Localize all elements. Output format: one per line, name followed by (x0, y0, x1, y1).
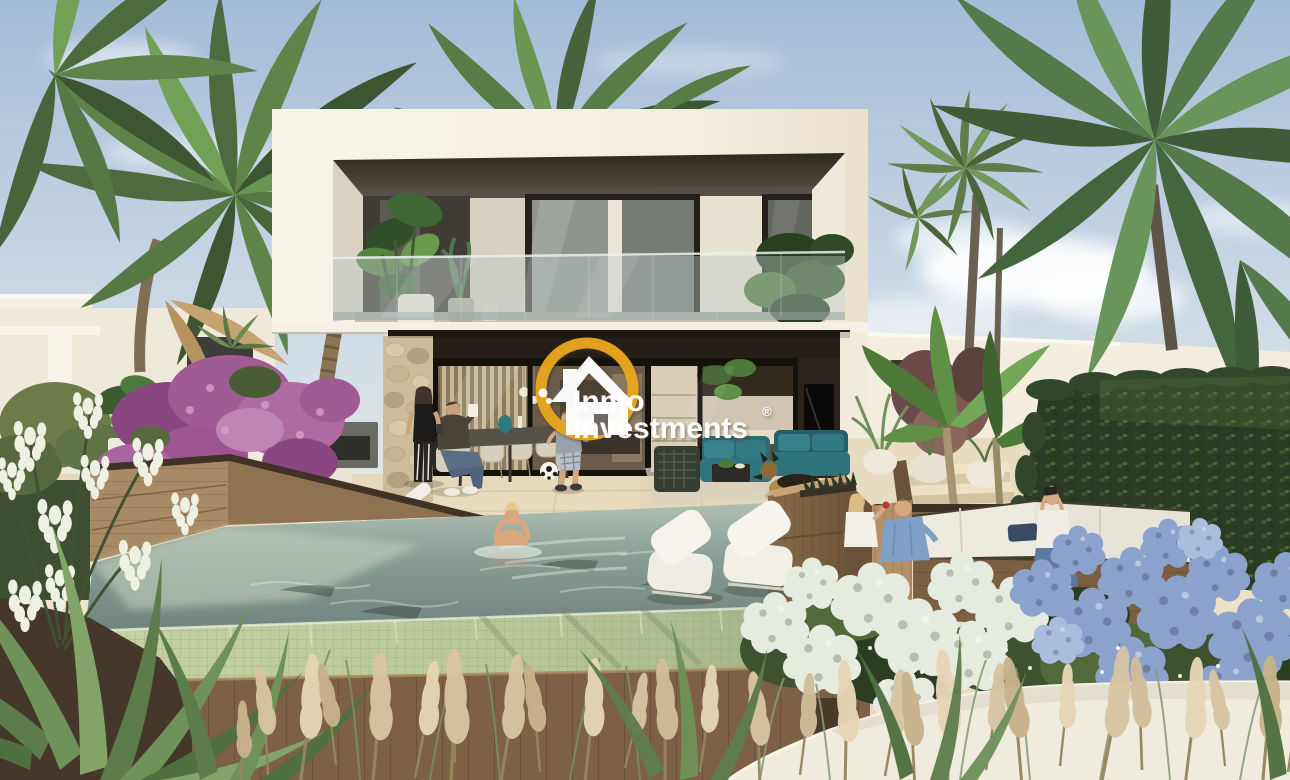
render-canvas: Inmo Investments ® (0, 0, 1290, 780)
red-cup (883, 502, 890, 509)
balcony-glass-railing (333, 252, 845, 320)
round-pot (909, 453, 951, 483)
teal-vase (498, 415, 512, 433)
table-plant (718, 460, 734, 468)
logo-dot (546, 398, 552, 404)
phone (436, 424, 443, 434)
white-cup (468, 404, 478, 417)
hair-bun (508, 502, 516, 510)
round-pot (863, 449, 897, 475)
villa-upper-floor (272, 109, 868, 333)
navy-pillow (1007, 523, 1038, 542)
candle (518, 416, 522, 428)
logo-dot (539, 389, 548, 398)
teal-sofa-right (772, 430, 850, 476)
villa-render-image: Inmo Investments ® (0, 0, 1290, 780)
patterned-armchair (654, 446, 700, 492)
soccer-ball (540, 462, 558, 480)
registered-trademark: ® (762, 404, 772, 419)
watermark-line2: Investments (573, 412, 748, 445)
dog-head (761, 462, 778, 479)
